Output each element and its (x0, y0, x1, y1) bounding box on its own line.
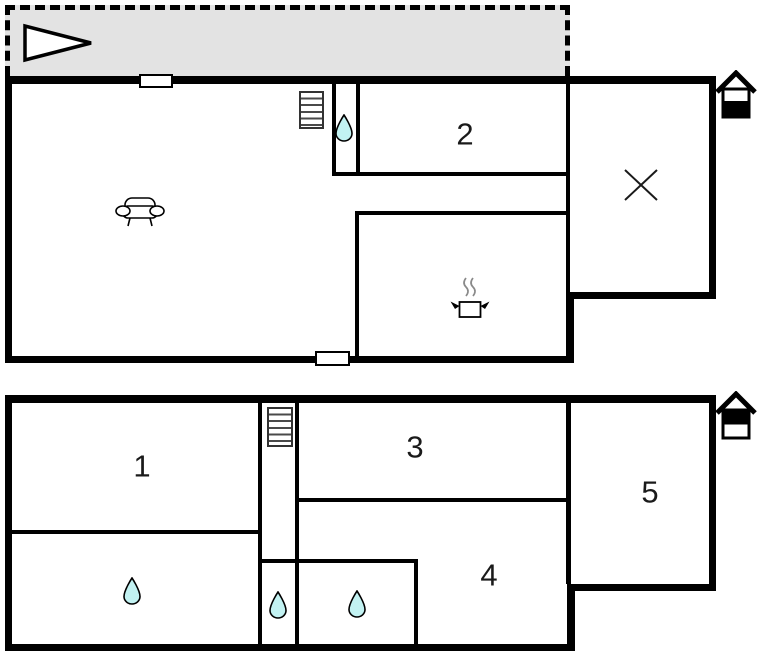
wall-wc-top (261, 559, 417, 563)
door-opening (139, 74, 173, 88)
wall-step (567, 584, 575, 651)
wall-outer-bottom (5, 356, 573, 363)
wall-room1-bottom (12, 530, 258, 534)
wall-outer-bottom (5, 644, 575, 651)
cooking-pot-icon (448, 276, 492, 322)
stairs-icon (267, 407, 293, 447)
house-level-icon (714, 391, 758, 441)
water-drop-icon (268, 591, 288, 619)
floor-plan-canvas: 2 (0, 0, 758, 652)
water-drop-icon (334, 114, 354, 142)
door-opening (315, 351, 350, 366)
wall-annex-bottom (570, 292, 716, 299)
room-label-3: 3 (406, 432, 423, 463)
house-level-icon (714, 70, 758, 120)
sofa-icon (115, 196, 165, 230)
wall-kitchen-top (355, 211, 570, 215)
wall-corridor-left (258, 403, 262, 644)
room-label-1: 1 (133, 451, 150, 482)
stairs-icon (299, 91, 324, 129)
wall-room2-bottom (332, 172, 568, 176)
wall-corridor-right (295, 403, 299, 644)
wall-room5-left (566, 403, 571, 584)
wall-outer-top (5, 395, 716, 403)
wall-annex-left (566, 84, 570, 292)
room-label-2: 2 (456, 119, 473, 150)
water-drop-icon (122, 577, 142, 605)
room-label-4: 4 (480, 560, 497, 591)
direction-arrow-icon (22, 23, 94, 63)
wall-wc-right (414, 559, 418, 644)
cross-mark-icon (622, 167, 660, 203)
wall-outer-left (5, 395, 12, 651)
water-drop-icon (347, 590, 367, 618)
wall-outer-top (5, 76, 716, 84)
wall-step (566, 292, 574, 363)
wall-outer-left (5, 76, 12, 363)
room-label-5: 5 (641, 477, 658, 508)
wall-room5-bottom (567, 584, 716, 591)
wall-wc-right (356, 84, 360, 172)
wall-room3-bottom (298, 498, 566, 502)
wall-kitchen-left (355, 211, 359, 356)
